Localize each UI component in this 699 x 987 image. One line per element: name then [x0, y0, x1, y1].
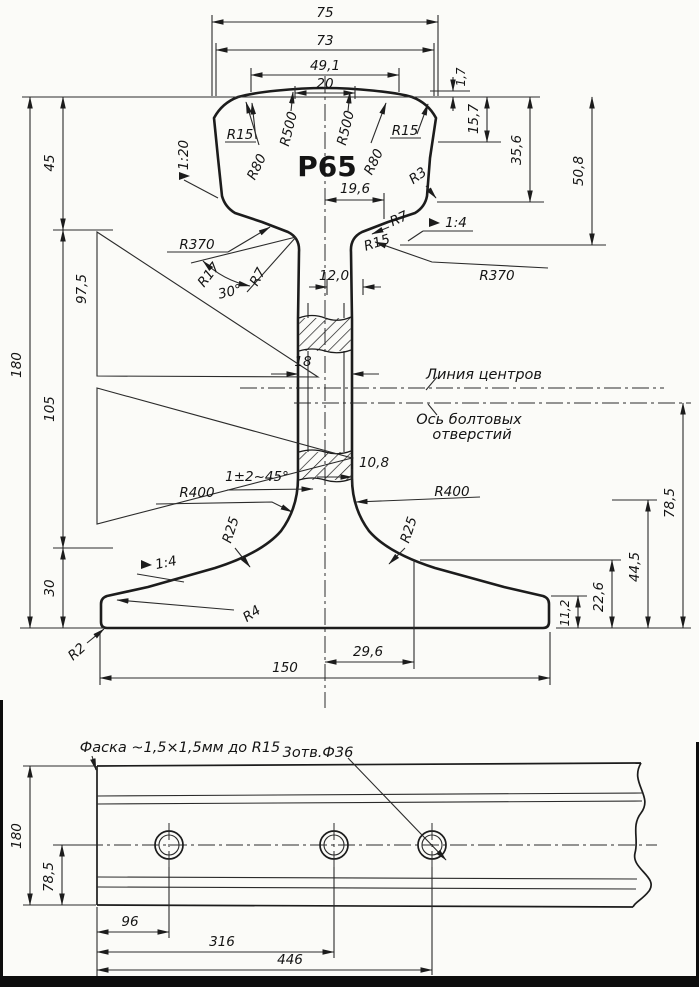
radius-r15-head-left-label: R15: [227, 127, 254, 143]
radius-r15-head-right-label: R15: [392, 123, 419, 139]
side-dim-180-label: 180: [9, 823, 25, 849]
dim-180-label: 180: [9, 352, 25, 378]
radius-r370-left-label: R370: [179, 237, 214, 253]
side-chamfer-note: Фаска ~1,5×1,5мм до R15: [80, 740, 281, 756]
dim-11-2-label: 11,2: [558, 600, 572, 627]
radius-r370-right-label: R370: [479, 268, 514, 284]
dim-35-6-label: 35,6: [509, 135, 525, 165]
radius-r400-left-label: R400: [179, 485, 214, 501]
dim-12-0-label: 12,0: [319, 268, 349, 284]
scan-border-bottom: [0, 976, 699, 987]
dim-97-5-label: 97,5: [74, 274, 90, 304]
dim-18-label: 18: [294, 354, 311, 370]
dim-1-7-label: 1,7: [454, 67, 468, 86]
dim-29-6-label: 29,6: [353, 644, 383, 660]
dim-75-label: 75: [316, 5, 333, 21]
radius-r500-right-label: R500: [334, 109, 358, 147]
slope-1-4-foot-label: 1:4: [154, 553, 179, 573]
radius-r500-left-label: R500: [277, 110, 301, 148]
side-view: Фаска ~1,5×1,5мм до R15 3отв.Ф36 180 78,…: [9, 740, 657, 976]
angle-30-label: 30°: [216, 281, 243, 302]
p65-rail-drawing: Линия центров Ось болтовых отверстий 75 …: [0, 0, 699, 987]
slope-symbol-1-20: [179, 172, 190, 180]
side-notes: Фаска ~1,5×1,5мм до R15 3отв.Ф36: [80, 740, 446, 860]
radius-r2-label: R2: [65, 640, 89, 664]
radius-r7-left-label: R7: [247, 265, 270, 289]
radius-r7-right-label: R7: [387, 208, 410, 230]
radius-r80-left-label: R80: [244, 152, 270, 183]
annotations: Линия центров Ось болтовых отверстий: [416, 367, 542, 443]
radius-r25-left-label: R25: [219, 515, 242, 545]
side-dim-78-5-label: 78,5: [41, 862, 57, 892]
dim-150-label: 150: [272, 660, 298, 676]
break-line: [633, 763, 651, 907]
dim-22-6-label: 22,6: [591, 582, 607, 612]
center-line-note: Линия центров: [425, 367, 542, 383]
radius-r400-right-label: R400: [434, 484, 469, 500]
dim-20-label: 20: [316, 76, 333, 92]
side-dim-316-label: 316: [209, 934, 235, 950]
dim-78-5-label: 78,5: [662, 488, 678, 518]
rail-designation: Р65: [297, 150, 357, 183]
radius-r80-right-label: R80: [361, 147, 387, 178]
dim-105-label: 105: [42, 396, 58, 422]
side-dim-96-label: 96: [121, 914, 138, 930]
dim-30-label: 30: [42, 579, 58, 596]
dim-10-8-label: 10,8: [359, 455, 389, 471]
dimensions-right: 15,7 35,6 50,8 78,5 44,5 22,6 11,2: [400, 97, 691, 628]
dim-50-8-label: 50,8: [571, 156, 587, 186]
dim-19-6-label: 19,6: [340, 181, 370, 197]
radius-r3-label: R3: [406, 164, 430, 188]
slope-1-4-head-label: 1:4: [445, 215, 467, 231]
side-dimensions: 180 78,5 96 316 446: [9, 766, 432, 976]
slope-symbol-1-4-foot: [141, 560, 152, 569]
dim-15-7-label: 15,7: [466, 104, 482, 134]
radius-r4-label: R4: [240, 602, 264, 625]
leader-wedge-upper: [97, 232, 318, 377]
scan-border-left: [0, 700, 3, 987]
dimensions-top: 75 73 49,1 20 1,7: [22, 5, 540, 111]
dim-73-label: 73: [316, 33, 333, 49]
bolt-axis-note-line1: Ось болтовых: [416, 412, 522, 428]
bolt-axis-note-line2: отверстий: [432, 427, 511, 443]
slope-symbol-1-4-head: [429, 218, 440, 227]
dim-44-5-label: 44,5: [627, 552, 643, 582]
dim-49-1-label: 49,1: [310, 58, 340, 74]
chamfer-note-label: 1±2~45°: [225, 469, 289, 485]
cross-section-view: Линия центров Ось болтовых отверстий 75 …: [9, 5, 691, 708]
side-dim-446-label: 446: [277, 952, 303, 968]
side-holes-note: 3отв.Ф36: [283, 745, 354, 761]
slope-1-20-label: 1:20: [176, 140, 192, 170]
scanned-drawing-sheet: Линия центров Ось болтовых отверстий 75 …: [0, 0, 699, 987]
radius-r25-right-label: R25: [397, 515, 420, 545]
dim-45-label: 45: [42, 154, 58, 171]
